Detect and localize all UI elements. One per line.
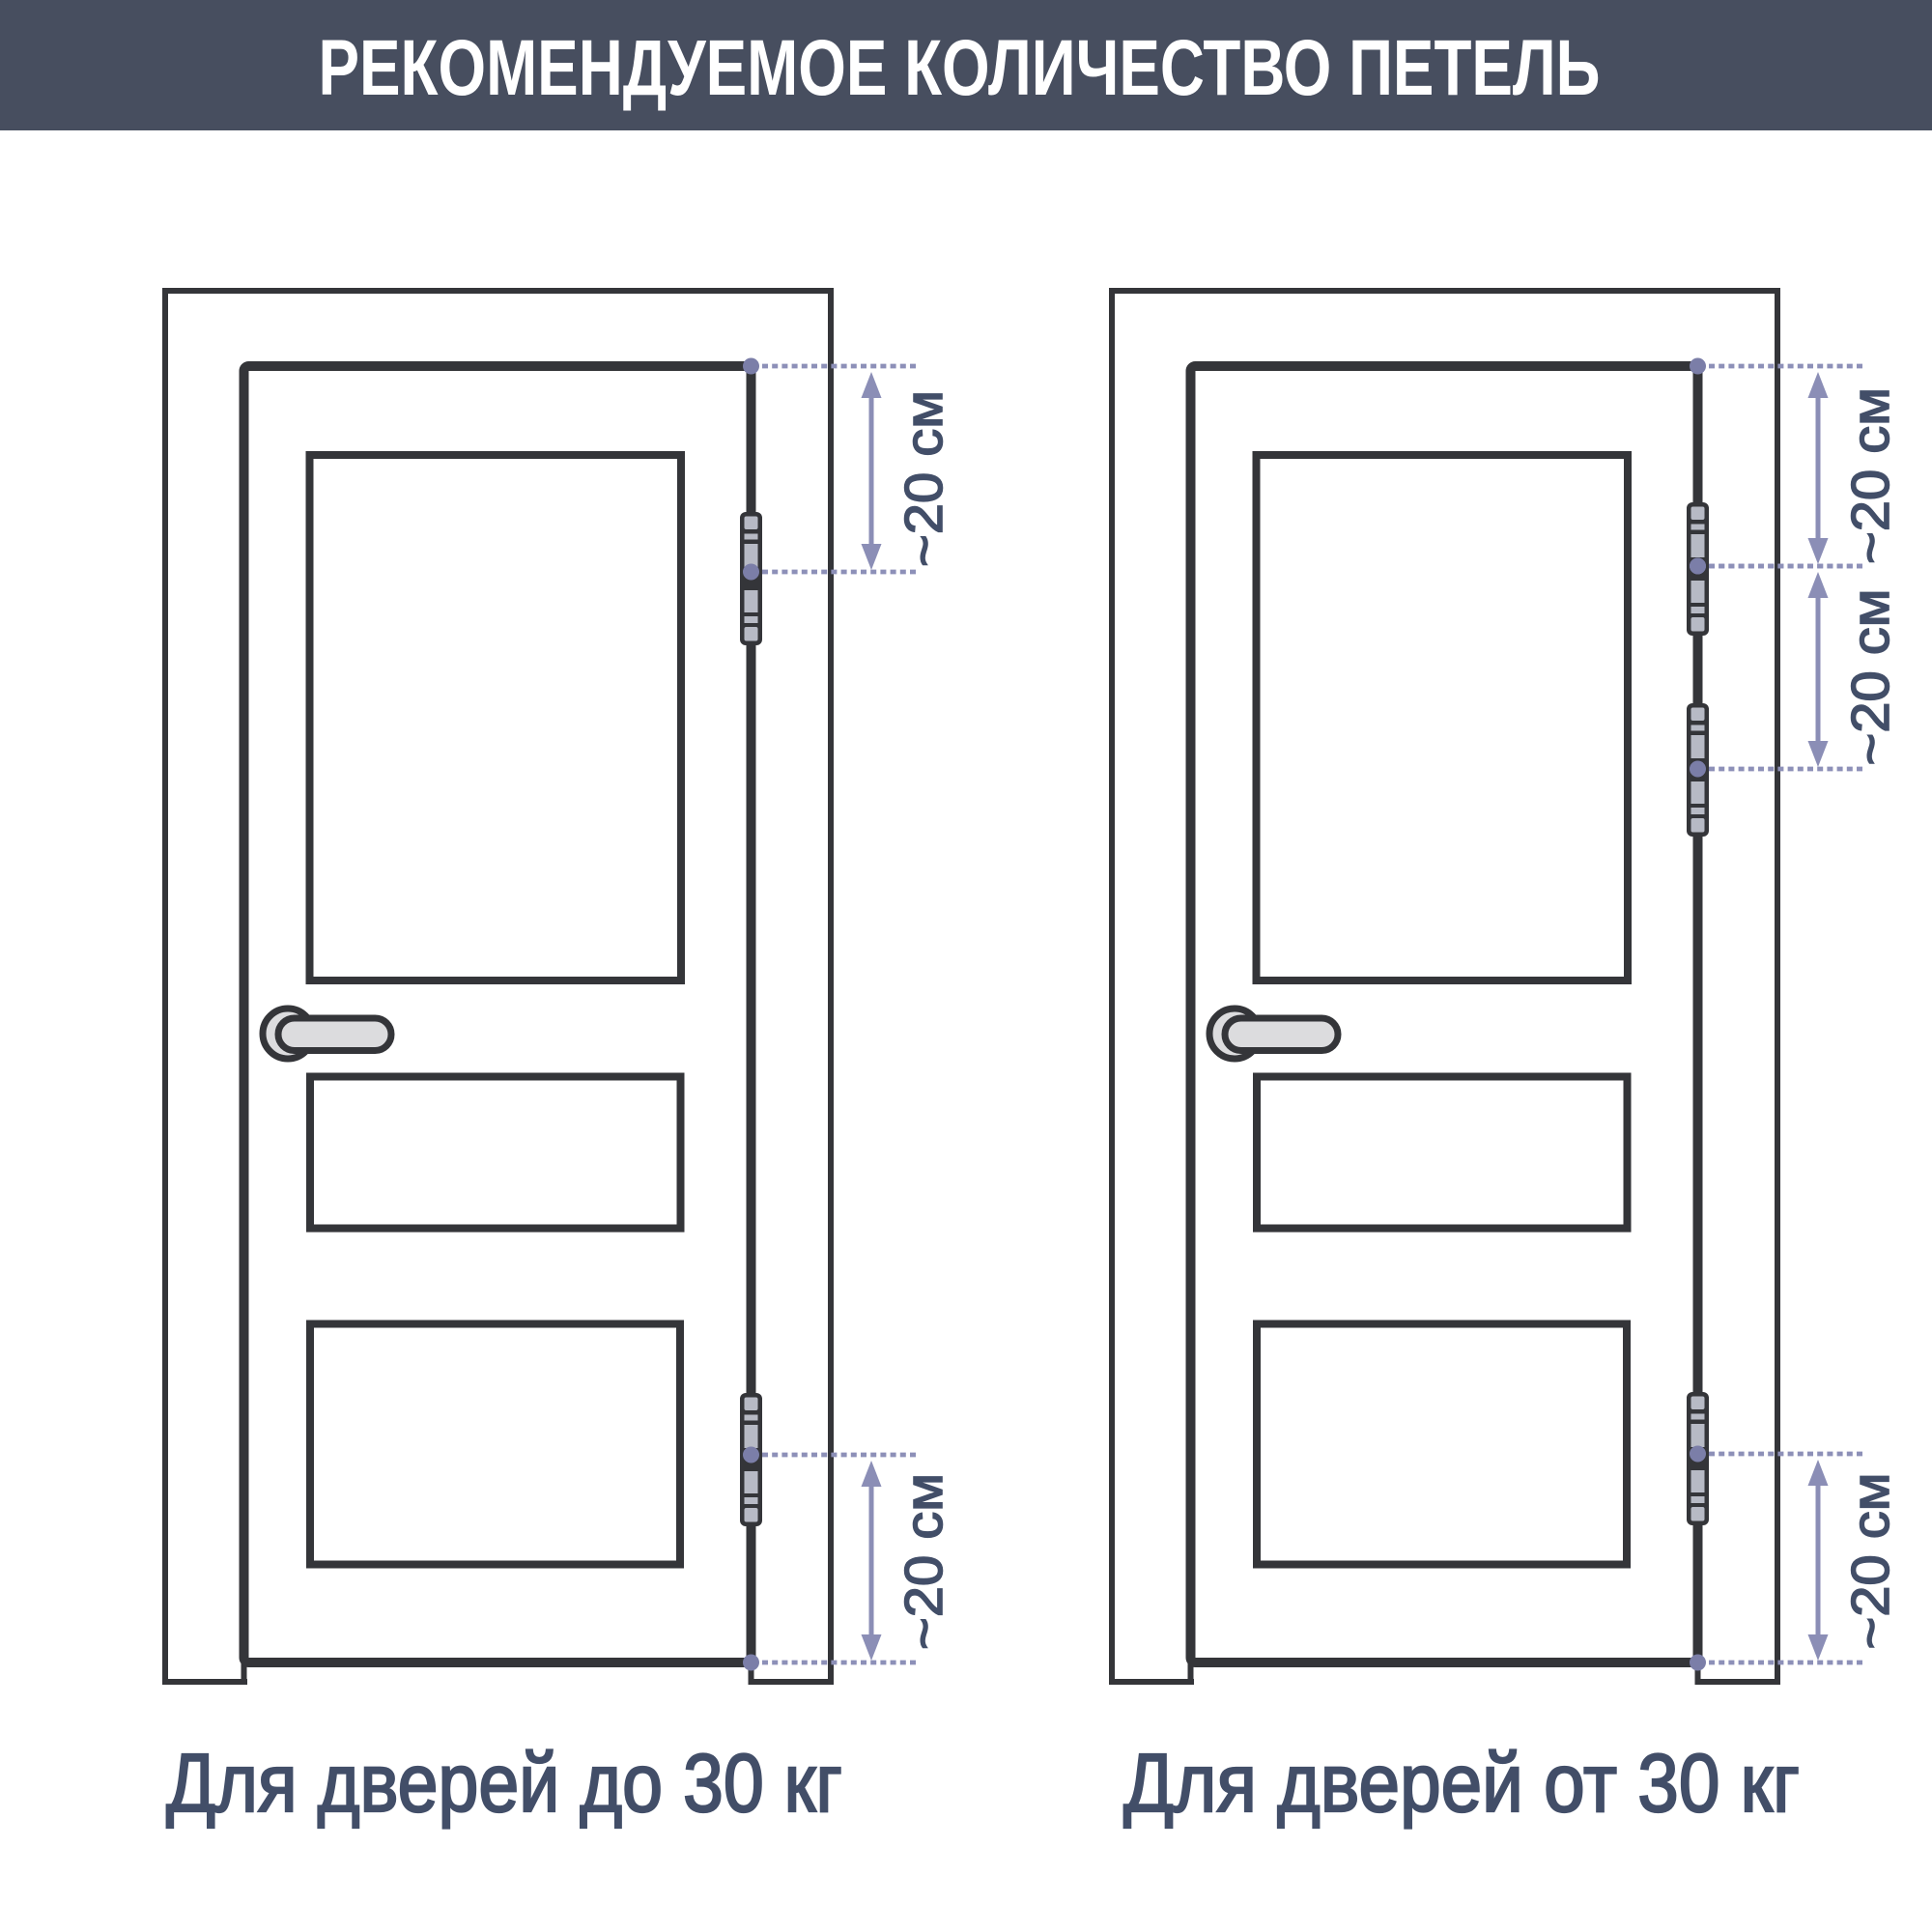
svg-text:~20 см: ~20 см <box>1840 387 1900 564</box>
svg-text:~20 см: ~20 см <box>894 390 953 567</box>
svg-text:РЕКОМЕНДУЕМОЕ КОЛИЧЕСТВО ПЕТЕЛ: РЕКОМЕНДУЕМОЕ КОЛИЧЕСТВО ПЕТЕЛЬ <box>319 24 1601 112</box>
svg-text:Для дверей до 30 кг: Для дверей до 30 кг <box>166 1738 842 1830</box>
svg-text:~20 см: ~20 см <box>894 1473 953 1650</box>
svg-text:~20 см: ~20 см <box>1840 1473 1900 1650</box>
svg-text:Для дверей от 30 кг: Для дверей от 30 кг <box>1123 1738 1800 1830</box>
svg-text:~20 см: ~20 см <box>1840 589 1900 766</box>
